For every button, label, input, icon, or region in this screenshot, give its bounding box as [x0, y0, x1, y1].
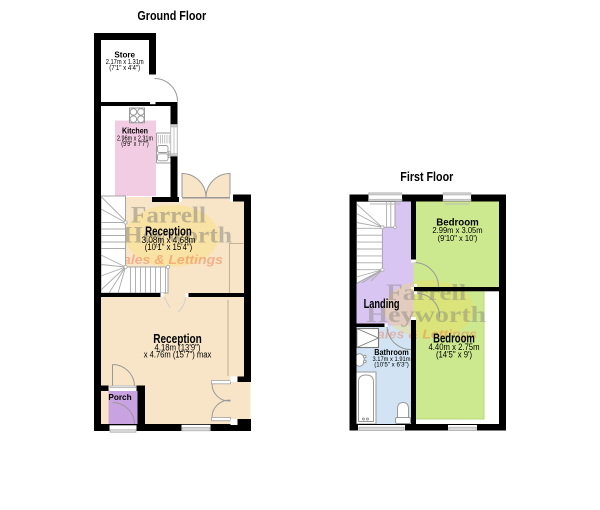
- svg-text:(7'1" x 4'4"): (7'1" x 4'4"): [109, 65, 140, 72]
- svg-text:Porch: Porch: [108, 392, 131, 402]
- svg-text:Kitchen: Kitchen: [122, 125, 148, 135]
- svg-text:(14'5" x 9'): (14'5" x 9'): [436, 350, 472, 360]
- svg-text:First Floor: First Floor: [400, 169, 453, 184]
- svg-text:(9'9" x 7'7"): (9'9" x 7'7"): [121, 141, 149, 148]
- svg-text:ales & Lettings: ales & Lettings: [123, 252, 223, 267]
- svg-text:Landing: Landing: [364, 297, 400, 311]
- svg-text:x 4.76m (15'7") max: x 4.76m (15'7") max: [144, 350, 212, 360]
- svg-text:(10'5" x 6'3"): (10'5" x 6'3"): [374, 362, 409, 369]
- svg-text:(9'10" x 10'): (9'10" x 10'): [438, 233, 478, 243]
- svg-text:Ground Floor: Ground Floor: [137, 8, 206, 23]
- svg-text:Store: Store: [114, 51, 135, 60]
- svg-text:(10'1" x 15'4"): (10'1" x 15'4"): [145, 242, 192, 252]
